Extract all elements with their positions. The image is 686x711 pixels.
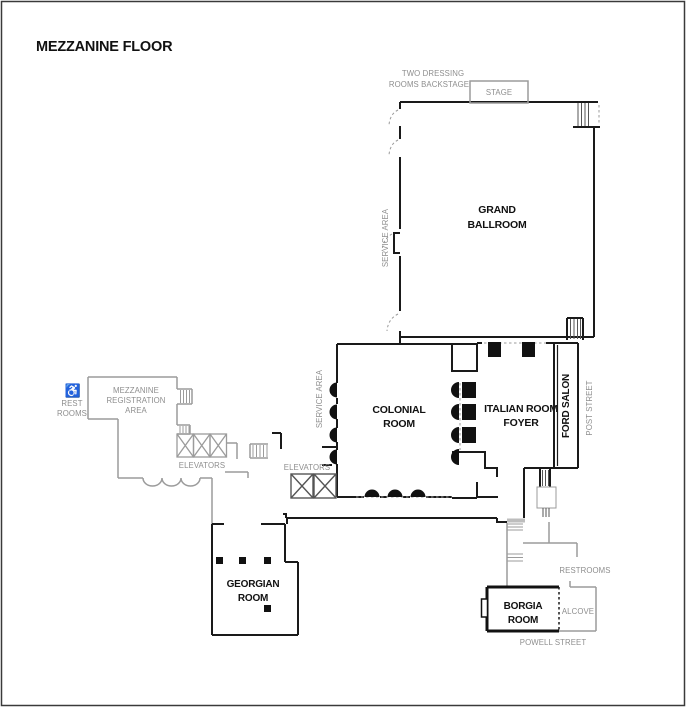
stage-label: STAGE xyxy=(486,88,512,97)
floor-plan-page: MEZZANINE FLOOR STAGE TWO DRESSING ROOMS… xyxy=(0,0,686,711)
door-icon-foyer-north-1 xyxy=(488,342,501,357)
stairs-corridor-1 xyxy=(507,524,523,530)
corridor-walls xyxy=(283,514,577,587)
stairs-west-2 xyxy=(180,426,189,433)
service-area-lower-label: SERVICE AREA xyxy=(315,369,324,428)
stairs-corridor-2 xyxy=(507,554,523,561)
colonial-room-label-line2: ROOM xyxy=(383,418,415,430)
column-georgian-3 xyxy=(264,557,271,564)
door-icon-foyer-north-2 xyxy=(522,342,535,357)
wheelchair-icon: ♿ xyxy=(65,383,81,398)
borgia-room-label-line2: ROOM xyxy=(508,615,538,626)
stairs-west-3 xyxy=(253,445,267,457)
post-street-label: POST STREET xyxy=(585,380,594,435)
dressing-rooms-label-line1: TWO DRESSING xyxy=(402,69,464,78)
rest-rooms-label-line2: ROOMS xyxy=(57,409,87,418)
mezzanine-registration-label-line3: AREA xyxy=(125,406,147,415)
page-border xyxy=(2,2,685,706)
door-swing-marks-ballroom xyxy=(382,105,599,331)
grand-ballroom-label-line2: BALLROOM xyxy=(467,219,527,231)
mezzanine-registration-label-line1: MEZZANINE xyxy=(113,386,159,395)
georgian-room-label-line2: ROOM xyxy=(238,593,268,604)
elevator-bank-central xyxy=(291,474,336,498)
grand-ballroom-label-line1: GRAND xyxy=(478,204,516,216)
door-icon-borgia-west xyxy=(482,599,488,617)
italian-foyer-label-line2: FOYER xyxy=(503,417,539,429)
floor-plan-canvas: MEZZANINE FLOOR STAGE TWO DRESSING ROOMS… xyxy=(0,0,686,711)
rest-rooms-label-line1: REST xyxy=(61,399,82,408)
alcove-label: ALCOVE xyxy=(562,607,594,616)
elevators-west-label: ELEVATORS xyxy=(179,461,225,470)
georgian-room-label-line1: GEORGIAN xyxy=(227,579,280,590)
column-georgian-4 xyxy=(264,605,271,612)
door-icons-colonial-south xyxy=(365,490,426,497)
elevator-bank-west xyxy=(177,434,227,457)
mezzanine-registration-label-line2: REGISTRATION xyxy=(106,396,165,405)
powell-street-label: POWELL STREET xyxy=(520,638,587,647)
stairs-foyer-south-1 xyxy=(543,470,549,486)
alcove-walls xyxy=(559,581,596,631)
stairs-west-1 xyxy=(181,390,190,403)
door-icons-colonial-west xyxy=(330,383,338,465)
dressing-rooms-label-line2: ROOMS BACKSTAGE xyxy=(389,80,469,89)
ford-salon-label: FORD SALON xyxy=(561,374,572,438)
service-area-upper-label: SERVICE AREA xyxy=(381,208,390,267)
column-georgian-2 xyxy=(239,557,246,564)
restrooms-label: RESTROOMS xyxy=(559,566,610,575)
italian-foyer-label-line1: ITALIAN ROOM xyxy=(484,403,558,415)
colonial-room-label-line1: COLONIAL xyxy=(372,404,426,416)
borgia-room-label-line1: BORGIA xyxy=(504,601,543,612)
stair-landing-box xyxy=(537,487,556,508)
stairs-foyer-south-2 xyxy=(543,508,549,517)
page-title: MEZZANINE FLOOR xyxy=(36,39,173,55)
elevators-central-label: ELEVATORS xyxy=(284,463,330,472)
column-georgian-1 xyxy=(216,557,223,564)
stairs-ballroom-topright xyxy=(578,103,589,126)
